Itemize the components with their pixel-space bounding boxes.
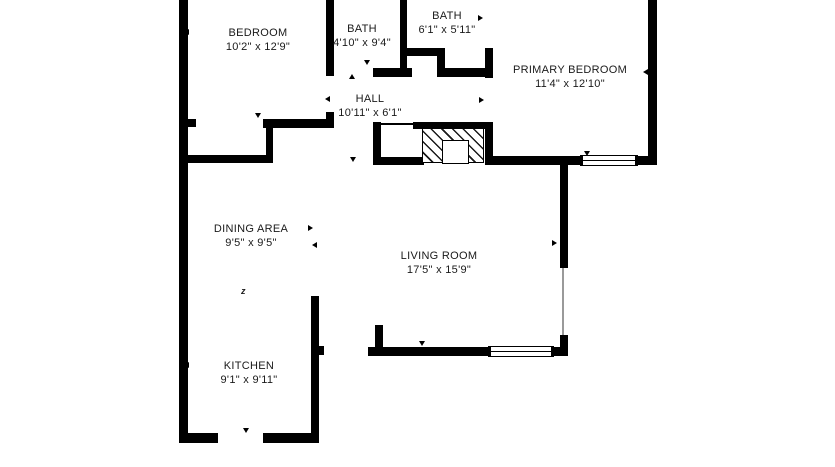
hall-closet-door-line bbox=[381, 123, 413, 125]
room-label-dining-area: DINING AREA 9'5" x 9'5" bbox=[214, 222, 288, 250]
room-name: BATH bbox=[419, 9, 476, 23]
wall-kitchen-right bbox=[311, 296, 319, 443]
wall-living-bottom-right bbox=[554, 347, 568, 356]
door-tick-icon bbox=[584, 151, 590, 156]
door-tick-icon bbox=[350, 157, 356, 162]
wall-primary-bottom-right bbox=[638, 156, 657, 165]
room-label-bath-1: BATH 4'10" x 9'4" bbox=[333, 22, 391, 50]
door-tick-icon bbox=[552, 240, 557, 246]
wall-bath1-bottom bbox=[373, 68, 412, 77]
room-dims: 6'1" x 5'11" bbox=[419, 23, 476, 37]
sliding-door-line bbox=[562, 268, 564, 335]
wall-bath2-inner-horizontal bbox=[400, 48, 445, 56]
room-dims: 17'5" x 15'9" bbox=[401, 263, 478, 277]
wall-bath2-bottom bbox=[437, 68, 490, 77]
door-tick-icon bbox=[308, 225, 313, 231]
door-tick-icon bbox=[479, 97, 484, 103]
room-name: BATH bbox=[333, 22, 391, 36]
room-label-living-room: LIVING ROOM 17'5" x 15'9" bbox=[401, 249, 478, 277]
door-tick-icon bbox=[478, 15, 483, 21]
room-dims: 4'10" x 9'4" bbox=[333, 36, 391, 50]
door-tick-icon bbox=[184, 29, 189, 35]
door-tick-icon bbox=[349, 74, 355, 79]
wall-exterior-left bbox=[179, 0, 188, 443]
room-name: HALL bbox=[338, 92, 401, 106]
door-tick-icon bbox=[182, 226, 187, 232]
room-label-primary-bedroom: PRIMARY BEDROOM 11'4" x 12'10" bbox=[513, 63, 627, 91]
room-label-hall: HALL 10'11" x 6'1" bbox=[338, 92, 401, 120]
wall-kitchen-entry-jamb bbox=[319, 346, 324, 355]
door-tick-icon bbox=[184, 362, 189, 368]
zigzag-marker: z bbox=[241, 287, 246, 296]
wall-kitchen-bottom-left bbox=[179, 433, 218, 443]
room-label-kitchen: KITCHEN 9'1" x 9'11" bbox=[221, 359, 278, 387]
room-dims: 10'2" x 12'9" bbox=[226, 40, 290, 54]
door-tick-icon bbox=[325, 96, 330, 102]
door-tick-icon bbox=[643, 69, 648, 75]
wall-kitchen-bottom-right bbox=[263, 433, 319, 443]
room-name: KITCHEN bbox=[221, 359, 278, 373]
wall-closet-jamb-left bbox=[188, 119, 196, 127]
wall-living-right bbox=[560, 158, 568, 268]
door-tick-icon bbox=[419, 341, 425, 346]
room-name: LIVING ROOM bbox=[401, 249, 478, 263]
wall-bath-divider bbox=[400, 0, 407, 77]
wall-primary-right bbox=[648, 0, 657, 165]
door-tick-icon bbox=[312, 242, 317, 248]
room-dims: 9'5" x 9'5" bbox=[214, 236, 288, 250]
room-name: DINING AREA bbox=[214, 222, 288, 236]
door-tick-icon bbox=[255, 113, 261, 118]
wall-dining-top bbox=[188, 155, 273, 163]
wall-bedroom-bottom bbox=[263, 119, 334, 128]
wall-primary-bottom-left bbox=[493, 156, 580, 165]
room-label-bath-2: BATH 6'1" x 5'11" bbox=[419, 9, 476, 37]
window-living-room-icon bbox=[488, 346, 554, 357]
door-tick-icon bbox=[243, 428, 249, 433]
room-label-bedroom: BEDROOM 10'2" x 12'9" bbox=[226, 26, 290, 54]
room-name: PRIMARY BEDROOM bbox=[513, 63, 627, 77]
wall-living-bottom bbox=[368, 347, 488, 356]
window-primary-bedroom-icon bbox=[580, 155, 638, 166]
floor-plan: z BEDROOM 10'2" x 12'9" BATH 4'10" x 9'4… bbox=[0, 0, 835, 467]
fireplace-flue-icon bbox=[442, 140, 469, 164]
door-tick-icon bbox=[364, 60, 370, 65]
room-dims: 11'4" x 12'10" bbox=[513, 77, 627, 91]
wall-hall-closet-bottom bbox=[373, 157, 424, 165]
room-dims: 10'11" x 6'1" bbox=[338, 106, 401, 120]
room-dims: 9'1" x 9'11" bbox=[221, 373, 278, 387]
fireplace-icon bbox=[422, 128, 484, 163]
room-name: BEDROOM bbox=[226, 26, 290, 40]
